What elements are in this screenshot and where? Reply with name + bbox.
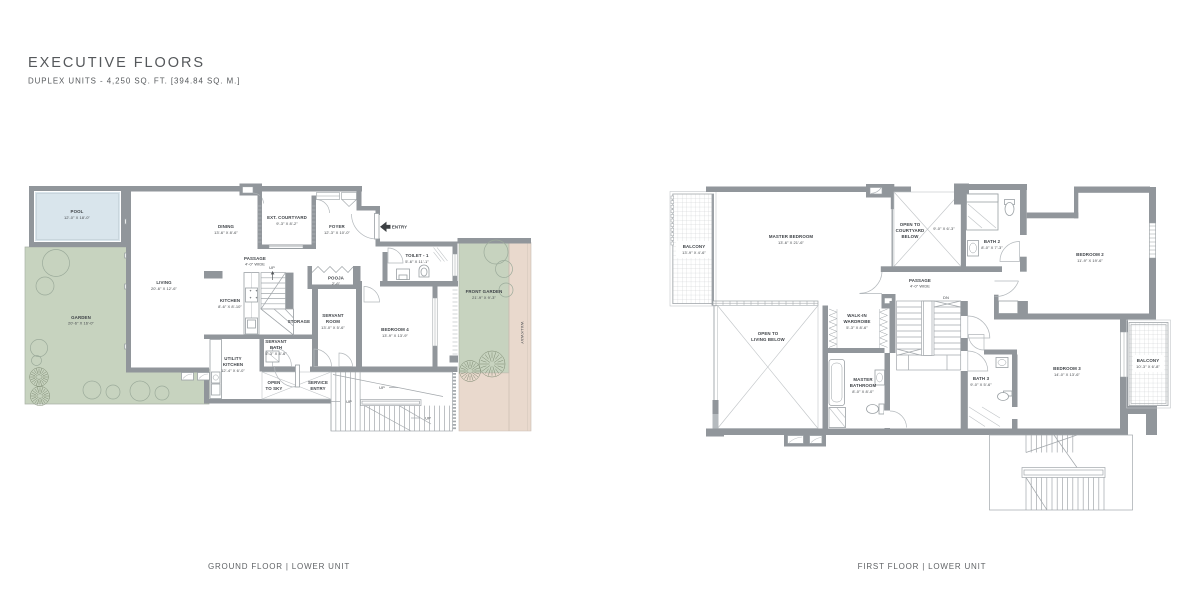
svg-text:STORAGE: STORAGE — [288, 319, 310, 324]
svg-text:LIVING BELOW: LIVING BELOW — [751, 337, 785, 342]
svg-text:FOYER: FOYER — [329, 224, 345, 229]
svg-text:14'-0" X 13'-6": 14'-0" X 13'-6" — [1054, 372, 1081, 377]
svg-text:UP: UP — [379, 385, 385, 390]
svg-text:WALK-IN: WALK-IN — [847, 313, 867, 318]
svg-text:UTILITY: UTILITY — [224, 356, 241, 361]
svg-text:5'-3" X 4'-6": 5'-3" X 4'-6" — [265, 351, 287, 356]
svg-text:BATH 2: BATH 2 — [984, 239, 1001, 244]
svg-text:ROOM: ROOM — [326, 319, 340, 324]
svg-text:9'-0" X 6'-3": 9'-0" X 6'-3" — [933, 226, 955, 231]
svg-text:BATHROOM: BATHROOM — [850, 383, 877, 388]
svg-text:BEDROOM 4: BEDROOM 4 — [381, 327, 409, 332]
svg-text:9'-0" X 5'-6": 9'-0" X 5'-6" — [970, 382, 992, 387]
svg-text:BALCONY: BALCONY — [683, 244, 706, 249]
svg-text:SERVANT: SERVANT — [265, 339, 287, 344]
svg-text:WARDROBE: WARDROBE — [843, 319, 870, 324]
svg-text:21'-9" X 9'-3": 21'-9" X 9'-3" — [472, 295, 496, 300]
svg-text:13'-6" X 21'-6": 13'-6" X 21'-6" — [778, 240, 805, 245]
svg-text:8'-0" X 8'-0": 8'-0" X 8'-0" — [852, 389, 874, 394]
svg-text:FRONT GARDEN: FRONT GARDEN — [466, 289, 503, 294]
svg-text:TOILET - 1: TOILET - 1 — [405, 253, 429, 258]
svg-text:KITCHEN: KITCHEN — [223, 362, 243, 367]
svg-text:SERVICE: SERVICE — [308, 380, 328, 385]
svg-text:UP: UP — [269, 265, 275, 270]
svg-text:MASTER: MASTER — [853, 377, 873, 382]
svg-text:SERVANT: SERVANT — [322, 313, 344, 318]
svg-text:UP: UP — [346, 399, 352, 404]
svg-text:MASTER BEDROOM: MASTER BEDROOM — [769, 234, 814, 239]
svg-text:11'-9" X 19'-6": 11'-9" X 19'-6" — [1077, 258, 1103, 263]
svg-text:12'-0" X 18'-0": 12'-0" X 18'-0" — [64, 215, 91, 220]
svg-text:8'-6" X 8'-10": 8'-6" X 8'-10" — [218, 304, 242, 309]
svg-text:EXT. COURTYARD: EXT. COURTYARD — [267, 215, 307, 220]
svg-text:BATH: BATH — [270, 345, 282, 350]
svg-text:BELOW: BELOW — [902, 234, 920, 239]
svg-text:ENTRY: ENTRY — [392, 225, 407, 230]
svg-text:DINING: DINING — [218, 224, 235, 229]
svg-text:9'-3" X 8'-2": 9'-3" X 8'-2" — [276, 221, 298, 226]
svg-text:OPEN TO: OPEN TO — [900, 222, 921, 227]
svg-text:POOJA: POOJA — [328, 276, 345, 281]
svg-text:13'-9" X 4'-6": 13'-9" X 4'-6" — [682, 250, 706, 255]
svg-text:WALKWAY: WALKWAY — [520, 322, 525, 345]
svg-text:UP: UP — [425, 416, 431, 421]
svg-text:GROUND FLOOR | LOWER UNIT: GROUND FLOOR | LOWER UNIT — [208, 562, 350, 571]
svg-text:4'-0" WIDE: 4'-0" WIDE — [245, 262, 265, 267]
svg-text:BEDROOM 2: BEDROOM 2 — [1076, 252, 1104, 257]
svg-text:20'-6" X 16'-0": 20'-6" X 16'-0" — [68, 321, 95, 326]
svg-text:PASSAGE: PASSAGE — [244, 256, 266, 261]
svg-text:ENTRY: ENTRY — [310, 386, 325, 391]
svg-text:13'-0" X 5'-6": 13'-0" X 5'-6" — [321, 325, 345, 330]
svg-text:4'-0" WIDE: 4'-0" WIDE — [910, 284, 930, 289]
svg-text:8'-0" X 7'-3": 8'-0" X 7'-3" — [981, 245, 1003, 250]
svg-text:COURTYARD: COURTYARD — [896, 228, 925, 233]
svg-text:DUPLEX UNITS - 4,250 SQ. FT. [: DUPLEX UNITS - 4,250 SQ. FT. [394.84 SQ.… — [28, 77, 240, 86]
svg-text:12'-3" X 10'-0": 12'-3" X 10'-0" — [324, 230, 351, 235]
svg-text:EXECUTIVE FLOORS: EXECUTIVE FLOORS — [28, 55, 205, 71]
svg-text:PASSAGE: PASSAGE — [909, 278, 931, 283]
svg-text:KITCHEN: KITCHEN — [220, 298, 240, 303]
svg-text:TO SKY: TO SKY — [266, 386, 283, 391]
svg-text:20'-6" X 12'-6": 20'-6" X 12'-6" — [151, 286, 178, 291]
svg-text:5'-3" X 8'-6": 5'-3" X 8'-6" — [846, 325, 868, 330]
svg-text:BEDROOM 3: BEDROOM 3 — [1053, 366, 1081, 371]
svg-text:13'-6" X 8'-6": 13'-6" X 8'-6" — [214, 230, 238, 235]
svg-text:5'-6" X 11'-1": 5'-6" X 11'-1" — [405, 259, 429, 264]
svg-text:LIVING: LIVING — [156, 280, 172, 285]
svg-text:2'-6": 2'-6" — [332, 281, 341, 286]
svg-text:DN: DN — [943, 295, 949, 300]
svg-text:13'-9" X 13'-9": 13'-9" X 13'-9" — [382, 333, 409, 338]
svg-text:OPEN: OPEN — [268, 380, 281, 385]
svg-text:POOL: POOL — [71, 209, 84, 214]
svg-text:FIRST FLOOR | LOWER UNIT: FIRST FLOOR | LOWER UNIT — [858, 562, 987, 571]
svg-text:OPEN TO: OPEN TO — [758, 331, 779, 336]
svg-text:BATH 3: BATH 3 — [973, 376, 990, 381]
svg-text:12'-4" X 6'-0": 12'-4" X 6'-0" — [221, 368, 245, 373]
svg-text:10'-3" X 6'-8": 10'-3" X 6'-8" — [1136, 364, 1160, 369]
svg-text:GARDEN: GARDEN — [71, 315, 91, 320]
svg-text:BALCONY: BALCONY — [1137, 358, 1160, 363]
